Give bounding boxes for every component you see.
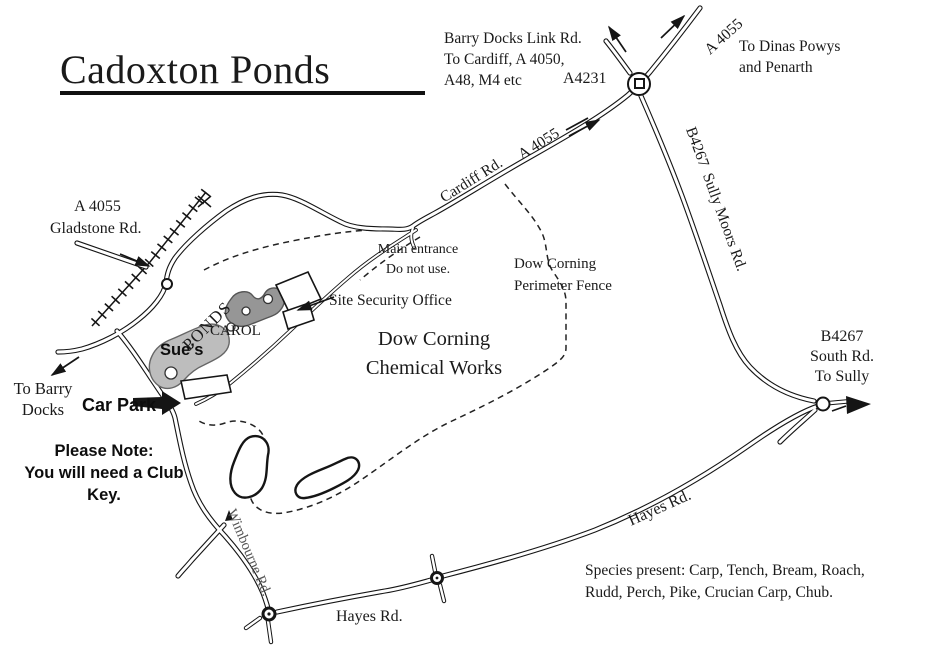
label-species-present: Species present: Carp, Tench, Bream, Roa… [585, 560, 865, 604]
map-title: Cadoxton Ponds [60, 50, 330, 90]
pond-peg [264, 295, 273, 304]
label-dow-perimeter-fence: Dow Corning Perimeter Fence [514, 253, 612, 297]
label-dow-chemical-works: Dow Corning Chemical Works [352, 325, 516, 383]
mini-roundabout-gladstone [162, 279, 172, 289]
label-site-security-office: Site Security Office [329, 290, 452, 311]
label-pond-sues: Sue’s [160, 340, 203, 361]
label-a4231: A4231 [563, 68, 607, 89]
label-pond-carol: CAROL [210, 321, 261, 342]
arrow-cardiff-direction [569, 120, 599, 136]
label-b4267-south: B4267 South Rd. To Sully [806, 327, 878, 387]
label-gladstone-a4055: A 4055 [50, 196, 145, 217]
label-hayes-rd-s: Hayes Rd. [336, 606, 403, 627]
label-main-entrance: Main entrance Do not use. [366, 240, 470, 280]
title-underline [60, 91, 425, 95]
roundabout-sully [817, 398, 830, 411]
arrow-to-sully-head [846, 396, 871, 414]
label-car-park: Car Park [82, 395, 156, 416]
pond-peg [165, 367, 177, 379]
pond-peg [242, 307, 250, 315]
arrow-to-barry [52, 357, 79, 375]
field-outlines [230, 436, 359, 498]
map-canvas: Cadoxton Ponds Barry Docks Link Rd. To C… [0, 0, 931, 659]
roundabout-a4231-island [635, 79, 644, 88]
label-barry-docks-link: Barry Docks Link Rd. To Cardiff, A 4050,… [444, 28, 582, 91]
label-to-barry-docks: To Barry Docks [6, 378, 80, 420]
car-park-area [181, 375, 231, 399]
label-dinas-powys: To Dinas Powys and Penarth [739, 36, 840, 78]
label-please-note: Please Note: You will need a Club Key. [18, 440, 190, 506]
label-gladstone-rd: Gladstone Rd. [50, 218, 142, 239]
arrow-to-sully-line [832, 406, 846, 411]
